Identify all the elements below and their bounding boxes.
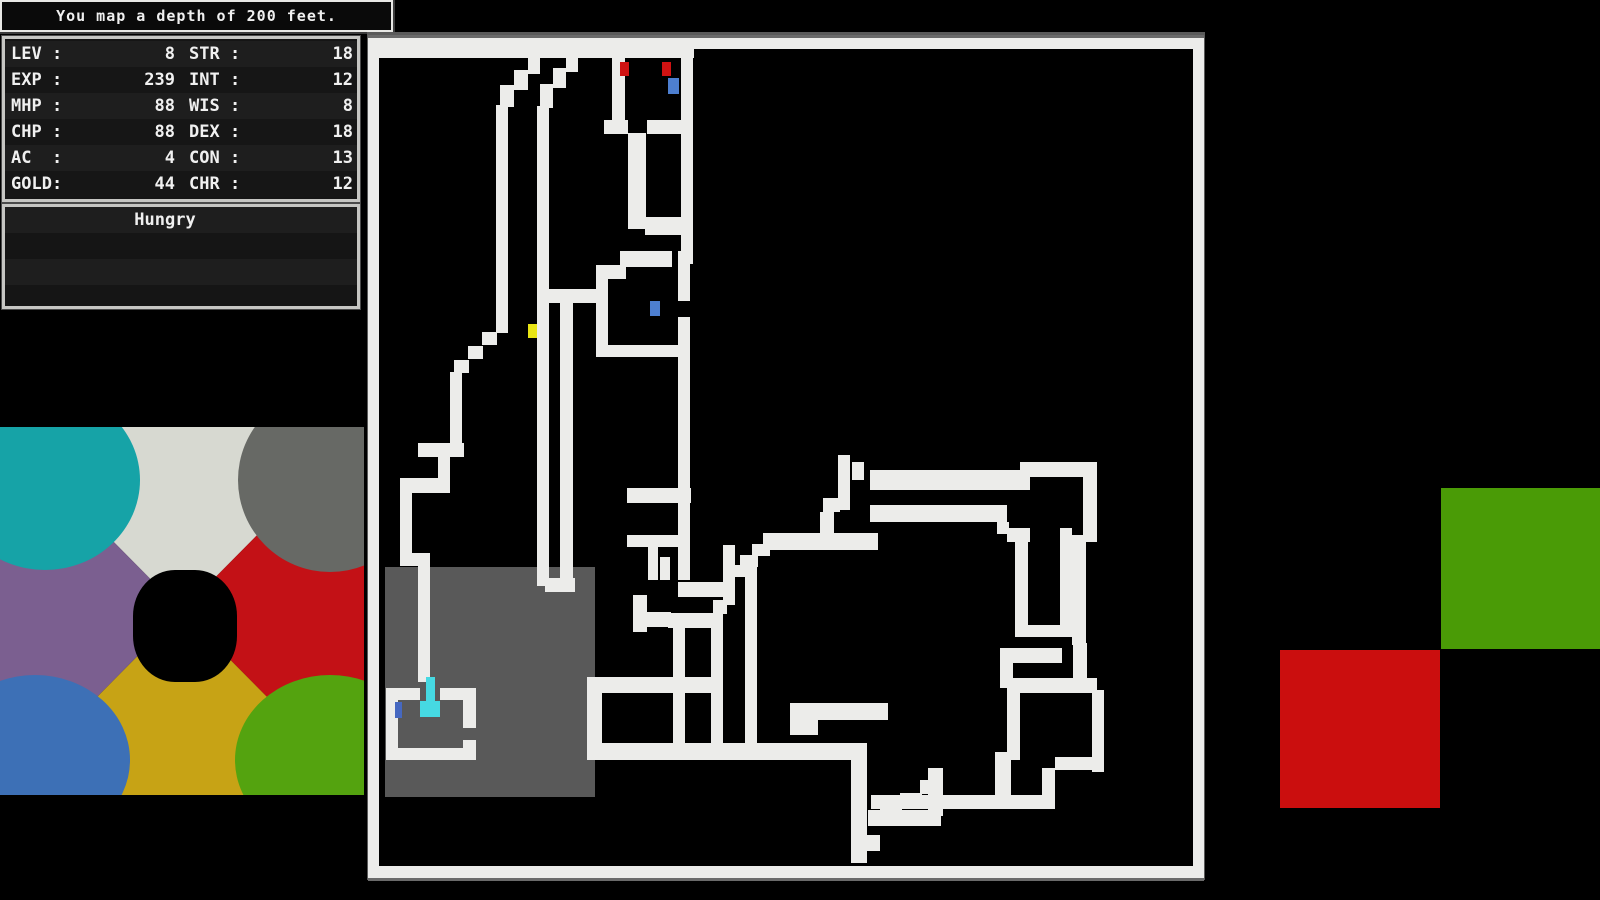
map-tile xyxy=(463,688,476,728)
map-tile xyxy=(368,866,1204,878)
stat-value: 239 xyxy=(103,67,175,93)
game-screen: { "message_bar": { "text": "You map a de… xyxy=(0,0,1600,900)
map-tile xyxy=(713,600,727,614)
art-panel xyxy=(0,427,364,795)
map-marker xyxy=(620,62,629,76)
map-marker xyxy=(662,62,671,76)
stat-label xyxy=(175,41,189,67)
map-tile xyxy=(870,470,1030,490)
stat-value: 44 xyxy=(103,171,175,197)
stat-value: 8 xyxy=(273,93,353,119)
map-tile xyxy=(763,533,878,550)
art-center-blob xyxy=(133,570,237,682)
stat-row: LEV :8STR :18 xyxy=(5,41,357,67)
map-tile xyxy=(418,443,464,457)
map-tile xyxy=(1055,757,1103,770)
map-tile xyxy=(537,106,549,586)
map-tile xyxy=(852,462,864,480)
map-marker xyxy=(395,702,402,718)
map-tile xyxy=(627,488,691,503)
map-tile xyxy=(790,715,818,735)
art-image xyxy=(0,427,364,795)
stat-value: 88 xyxy=(103,93,175,119)
map-tile xyxy=(733,565,747,577)
map-tile xyxy=(1007,685,1020,760)
map-tile xyxy=(1015,540,1028,637)
stats-panel: LEV :8STR :18EXP :239INT :12MHP :88WIS :… xyxy=(2,36,360,202)
map-tile xyxy=(928,768,943,816)
map-marker xyxy=(420,701,440,717)
stat-value: 18 xyxy=(273,41,353,67)
dungeon-map xyxy=(368,35,1204,881)
map-tile xyxy=(540,84,553,108)
stat-label: GOLD: xyxy=(11,171,103,197)
map-tile xyxy=(711,627,723,743)
message-bar: You map a depth of 200 feet. xyxy=(0,0,393,32)
map-tile xyxy=(604,120,628,134)
status-panel: Hungry xyxy=(2,204,360,309)
map-tile xyxy=(528,58,540,74)
stat-label: WIS : xyxy=(189,93,273,119)
stat-value: 8 xyxy=(103,41,175,67)
red-square xyxy=(1280,650,1440,808)
stat-value: 88 xyxy=(103,119,175,145)
map-tile xyxy=(620,251,672,267)
message-text: You map a depth of 200 feet. xyxy=(56,7,337,25)
map-tile xyxy=(668,613,723,628)
map-tile xyxy=(587,677,712,693)
map-tile xyxy=(463,740,476,760)
map-marker xyxy=(650,301,660,316)
map-tile xyxy=(823,498,840,512)
stat-label: LEV : xyxy=(11,41,103,67)
stat-row: CHP :88DEX :18 xyxy=(5,119,357,145)
map-tile xyxy=(678,301,690,317)
stat-value: 13 xyxy=(273,145,353,171)
stat-label xyxy=(175,171,189,197)
map-tile xyxy=(852,835,880,851)
map-tile xyxy=(468,346,483,359)
map-tile xyxy=(560,303,573,586)
map-tile xyxy=(900,793,922,807)
map-tile xyxy=(633,612,671,627)
map-tile xyxy=(566,58,578,72)
map-marker xyxy=(668,78,679,94)
map-tile xyxy=(1042,768,1055,798)
stat-label: CON : xyxy=(189,145,273,171)
map-tile xyxy=(368,38,379,878)
stat-label: AC : xyxy=(11,145,103,171)
map-tile xyxy=(418,560,430,682)
green-square xyxy=(1441,488,1600,649)
map-tile xyxy=(500,85,514,107)
stat-value: 12 xyxy=(273,67,353,93)
map-marker xyxy=(528,324,537,338)
map-tile xyxy=(385,567,595,797)
stat-label xyxy=(175,119,189,145)
stat-label: EXP : xyxy=(11,67,103,93)
status-text: Hungry xyxy=(5,207,357,233)
stat-label: STR : xyxy=(189,41,273,67)
stat-value: 4 xyxy=(103,145,175,171)
map-tile xyxy=(378,46,618,58)
stats-rows: LEV :8STR :18EXP :239INT :12MHP :88WIS :… xyxy=(5,41,357,197)
stat-label: DEX : xyxy=(189,119,273,145)
stat-label: CHR : xyxy=(189,171,273,197)
map-tile xyxy=(587,743,857,760)
map-tile xyxy=(1083,462,1097,542)
map-tile xyxy=(660,557,670,580)
map-tile xyxy=(596,265,608,357)
stat-row: EXP :239INT :12 xyxy=(5,67,357,93)
stat-label xyxy=(175,67,189,93)
map-tile xyxy=(450,372,462,450)
stat-label xyxy=(175,145,189,171)
stat-value: 18 xyxy=(273,119,353,145)
map-tile xyxy=(1193,38,1204,878)
map-tile xyxy=(1072,535,1086,645)
stat-row: GOLD:44CHR :12 xyxy=(5,171,357,197)
map-tile xyxy=(648,545,658,580)
map-tile xyxy=(1060,528,1072,637)
stat-row: AC :4CON :13 xyxy=(5,145,357,171)
map-tile xyxy=(400,491,412,559)
map-tile xyxy=(745,567,757,743)
stat-label: MHP : xyxy=(11,93,103,119)
stat-row: MHP :88WIS :8 xyxy=(5,93,357,119)
map-tile xyxy=(628,133,646,229)
map-tile xyxy=(678,251,690,491)
map-tile xyxy=(1000,648,1013,688)
map-tile xyxy=(553,68,566,88)
map-tile xyxy=(514,70,528,90)
map-tile xyxy=(995,752,1011,797)
stat-label xyxy=(175,93,189,119)
map-tile xyxy=(647,120,693,134)
map-tile xyxy=(1015,625,1072,637)
map-tile xyxy=(549,289,596,303)
map-tile xyxy=(596,345,678,357)
stat-label: INT : xyxy=(189,67,273,93)
stat-label: CHP : xyxy=(11,119,103,145)
map-tile xyxy=(368,878,1204,881)
map-tile xyxy=(482,332,497,345)
map-tile xyxy=(870,505,1007,522)
map-tile xyxy=(496,105,508,333)
map-tile xyxy=(1013,678,1097,693)
map-tile xyxy=(681,46,693,232)
stat-value: 12 xyxy=(273,171,353,197)
